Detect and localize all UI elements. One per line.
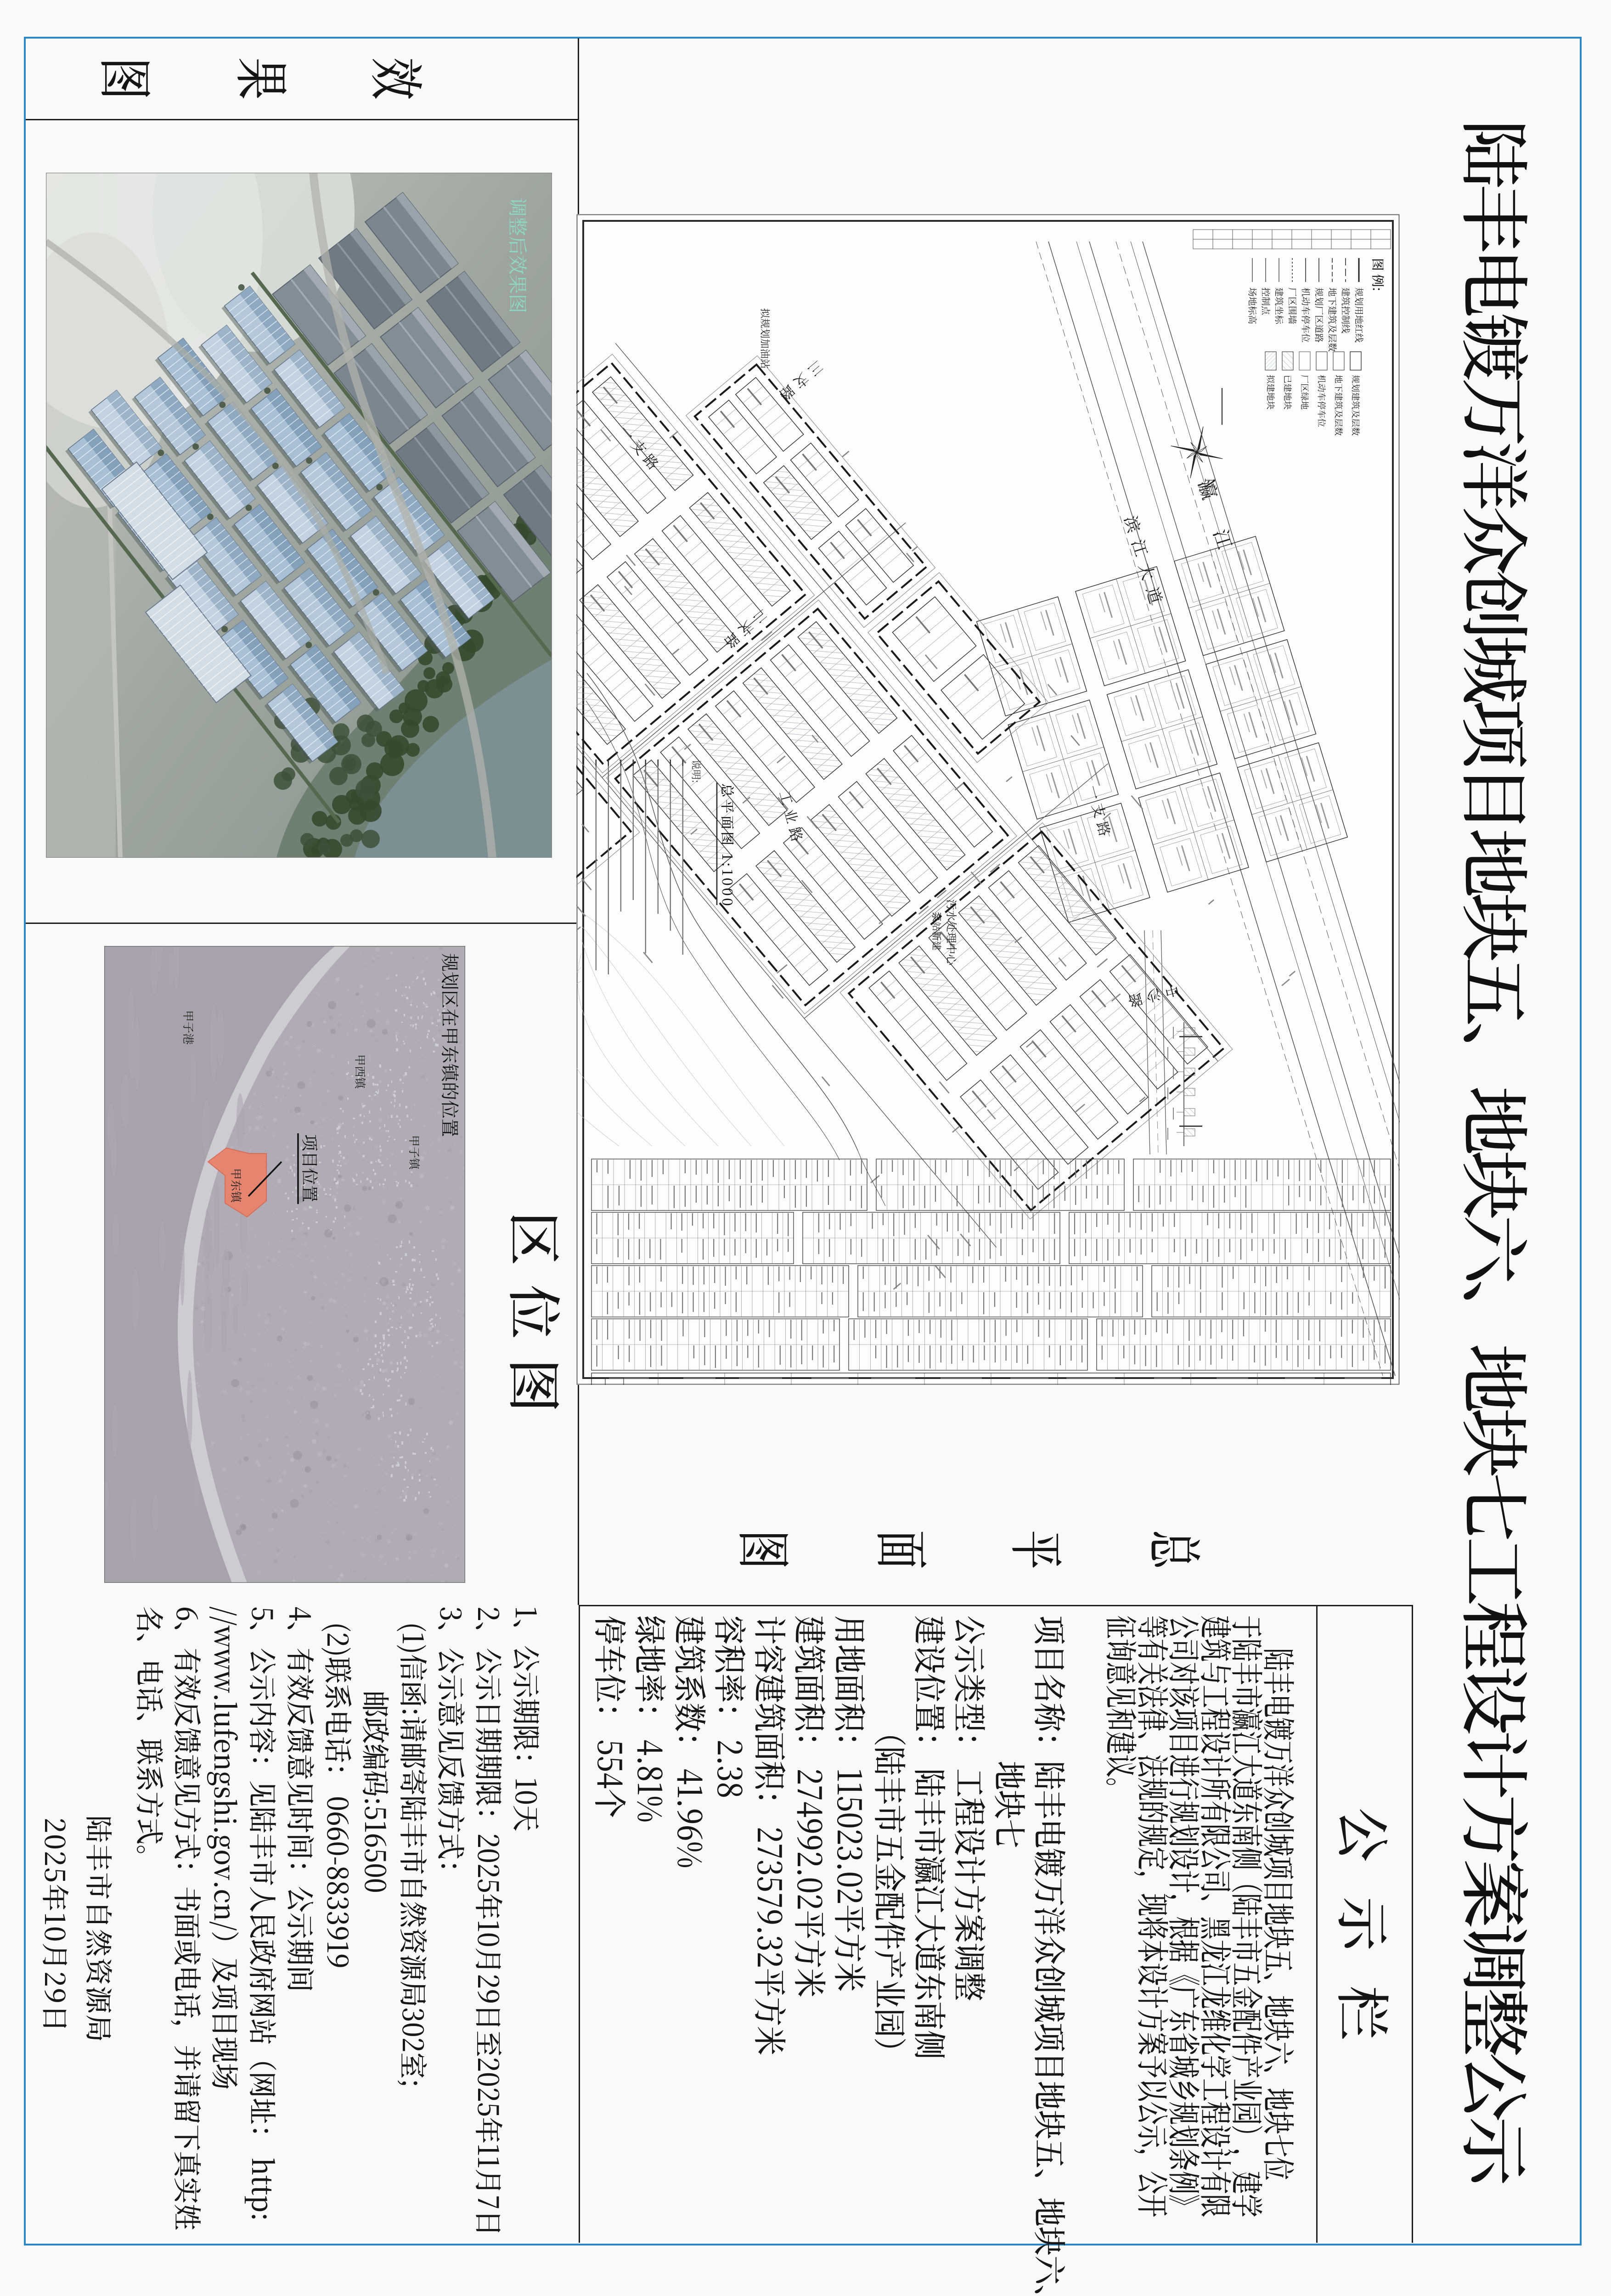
svg-text:厂区绿地: 厂区绿地 bbox=[1299, 375, 1311, 410]
svg-text:泵站新建: 泵站新建 bbox=[930, 912, 944, 951]
svg-text:调整后效果图: 调整后效果图 bbox=[505, 197, 532, 313]
svg-text:控制点: 控制点 bbox=[1260, 287, 1273, 315]
svg-text:甲东镇: 甲东镇 bbox=[228, 1168, 245, 1204]
svg-text:污水处理中心: 污水处理中心 bbox=[944, 899, 960, 966]
svg-text:地下建筑及层数: 地下建筑及层数 bbox=[1326, 287, 1340, 352]
svg-text:项目位置: 项目位置 bbox=[299, 1134, 323, 1202]
svg-text:说明:: 说明: bbox=[689, 760, 704, 783]
svg-text:图 例:: 图 例: bbox=[1369, 258, 1387, 291]
svg-text:已建地块: 已建地块 bbox=[1282, 375, 1294, 410]
svg-text:机动车停车位: 机动车停车位 bbox=[1300, 287, 1313, 343]
svg-text:总平面图 1:1000: 总平面图 1:1000 bbox=[718, 783, 738, 908]
svg-text:拟规划加油站: 拟规划加油站 bbox=[758, 308, 772, 369]
svg-text:机动车停车位: 机动车停车位 bbox=[1316, 375, 1328, 427]
svg-text:甲子镇: 甲子镇 bbox=[406, 1135, 423, 1171]
svg-text:甲西镇: 甲西镇 bbox=[352, 1054, 369, 1090]
svg-text:建筑控制线: 建筑控制线 bbox=[1340, 287, 1353, 333]
svg-text:拟建地块: 拟建地块 bbox=[1265, 375, 1277, 410]
svg-text:规划区在甲东镇的位置: 规划区在甲东镇的位置 bbox=[438, 953, 464, 1137]
svg-text:规划用地红线: 规划用地红线 bbox=[1353, 287, 1366, 343]
svg-text:建筑坐标: 建筑坐标 bbox=[1273, 287, 1286, 325]
svg-text:规划厂区道路: 规划厂区道路 bbox=[1313, 287, 1326, 343]
svg-text:场地标高: 场地标高 bbox=[1246, 287, 1260, 324]
svg-text:甲子港: 甲子港 bbox=[180, 1010, 197, 1045]
svg-text:厂区围墙: 厂区围墙 bbox=[1286, 287, 1300, 324]
svg-text:地下建筑及层数: 地下建筑及层数 bbox=[1333, 375, 1345, 436]
svg-text:规划建筑及层数: 规划建筑及层数 bbox=[1350, 375, 1362, 436]
